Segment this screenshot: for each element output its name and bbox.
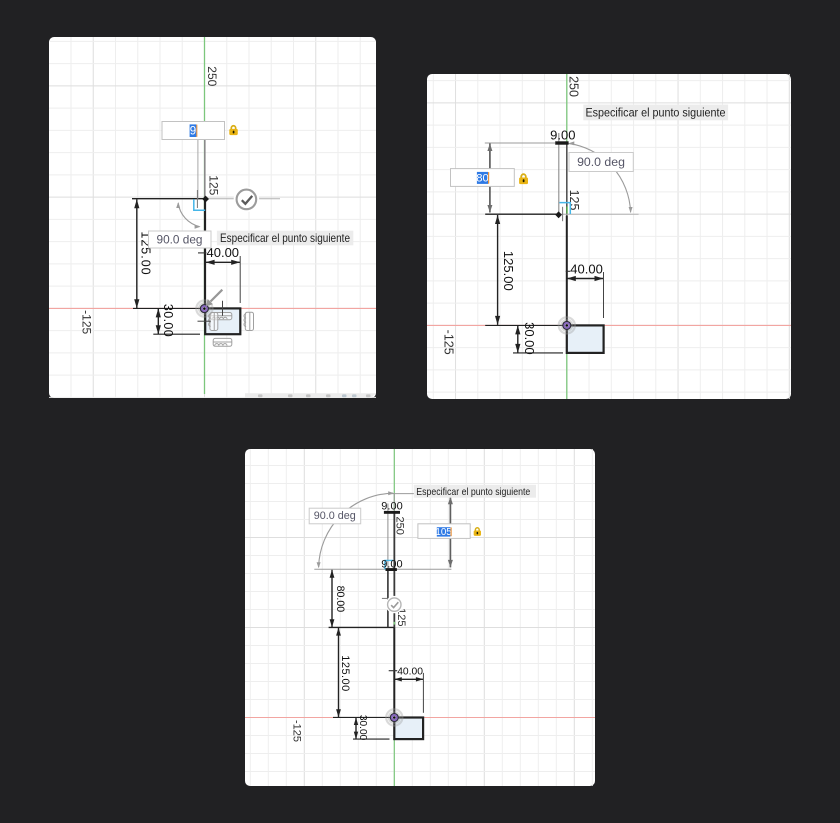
svg-text:90.0 deg: 90.0 deg [157,233,203,247]
svg-text:Especificar el punto siguiente: Especificar el punto siguiente [586,106,726,120]
svg-text:Especificar el punto siguiente: Especificar el punto siguiente [220,232,350,245]
svg-text:250: 250 [205,66,219,86]
svg-text:80: 80 [476,173,489,185]
svg-text:9.00: 9.00 [381,501,402,513]
svg-text:30.00: 30.00 [522,322,537,355]
svg-text:125: 125 [206,175,220,195]
svg-text:250: 250 [567,76,581,97]
svg-text:90.0 deg: 90.0 deg [577,155,625,169]
svg-text:9.00: 9.00 [550,127,575,142]
svg-text:9: 9 [190,126,196,138]
svg-text:90.0 deg: 90.0 deg [314,510,356,522]
svg-text:40.00: 40.00 [397,667,423,678]
svg-text:-125: -125 [80,310,94,334]
svg-text:105: 105 [435,527,452,538]
svg-text:125.00: 125.00 [501,251,516,291]
svg-text:-125: -125 [441,330,455,355]
svg-text:40.00: 40.00 [570,262,603,277]
svg-text:80.00: 80.00 [334,586,346,613]
svg-text:-125: -125 [290,720,302,742]
svg-text:125: 125 [567,190,581,211]
svg-text:Especificar el punto siguiente: Especificar el punto siguiente [416,487,530,498]
svg-text:125.00: 125.00 [339,655,351,691]
svg-text:30.00: 30.00 [357,715,368,741]
svg-text:250: 250 [394,517,406,535]
svg-text:30.00: 30.00 [161,304,175,337]
